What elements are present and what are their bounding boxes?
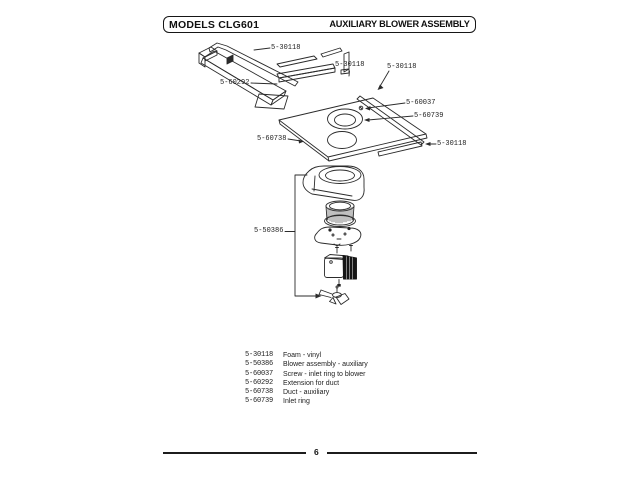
extension-duct-drawing	[199, 43, 298, 109]
part-number: 5-60292	[245, 379, 275, 388]
page-title: AUXILIARY BLOWER ASSEMBLY	[330, 19, 470, 30]
callout-foam-strip-bottom: 5-30118	[437, 140, 466, 148]
callout-extension-duct: 5-60292	[220, 79, 249, 87]
parts-list-row: 5-60292 Extension for duct	[245, 379, 368, 388]
exploded-diagram	[165, 38, 480, 323]
part-description: Extension for duct	[283, 379, 339, 388]
header-box: MODELS CLG601 AUXILIARY BLOWER ASSEMBLY	[163, 16, 476, 33]
part-description: Inlet ring	[283, 397, 310, 406]
callout-blower-assembly: 5-50386	[254, 227, 283, 235]
duct-panel-drawing	[279, 98, 427, 161]
callout-inlet-ring: 5-60739	[414, 112, 443, 120]
parts-list-row: 5-50386 Blower assembly - auxiliary	[245, 360, 368, 369]
manual-page: MODELS CLG601 AUXILIARY BLOWER ASSEMBLY	[0, 0, 640, 480]
parts-list-row: 5-60739 Inlet ring	[245, 397, 368, 406]
part-number: 5-30118	[245, 351, 275, 360]
callout-duct-auxiliary: 5-60738	[257, 135, 286, 143]
callout-screw-inlet-ring: 5-60037	[406, 99, 435, 107]
part-description: Duct - auxiliary	[283, 388, 329, 397]
parts-list-row: 5-60037 Screw - inlet ring to blower	[245, 370, 368, 379]
footer-rule-right	[327, 452, 477, 454]
parts-list-row: 5-60738 Duct - auxiliary	[245, 388, 368, 397]
parts-list-row: 5-30118 Foam - vinyl	[245, 351, 368, 360]
footer-rule-left	[163, 452, 306, 454]
callout-foam-strip-center: 5-30118	[335, 61, 364, 69]
page-number: 6	[314, 447, 319, 457]
part-number: 5-60739	[245, 397, 275, 406]
callout-foam-strip-top: 5-30118	[271, 44, 300, 52]
part-number: 5-60037	[245, 370, 275, 379]
part-description: Blower assembly - auxiliary	[283, 360, 368, 369]
part-description: Screw - inlet ring to blower	[283, 370, 365, 379]
parts-list: 5-30118 Foam - vinyl 5-50386 Blower asse…	[245, 351, 368, 407]
part-number: 5-60738	[245, 388, 275, 397]
models-label: MODELS CLG601	[169, 19, 259, 31]
callout-foam-strip-right: 5-30118	[387, 63, 416, 71]
blower-assembly-drawing	[303, 166, 364, 305]
part-number: 5-50386	[245, 360, 275, 369]
part-description: Foam - vinyl	[283, 351, 321, 360]
